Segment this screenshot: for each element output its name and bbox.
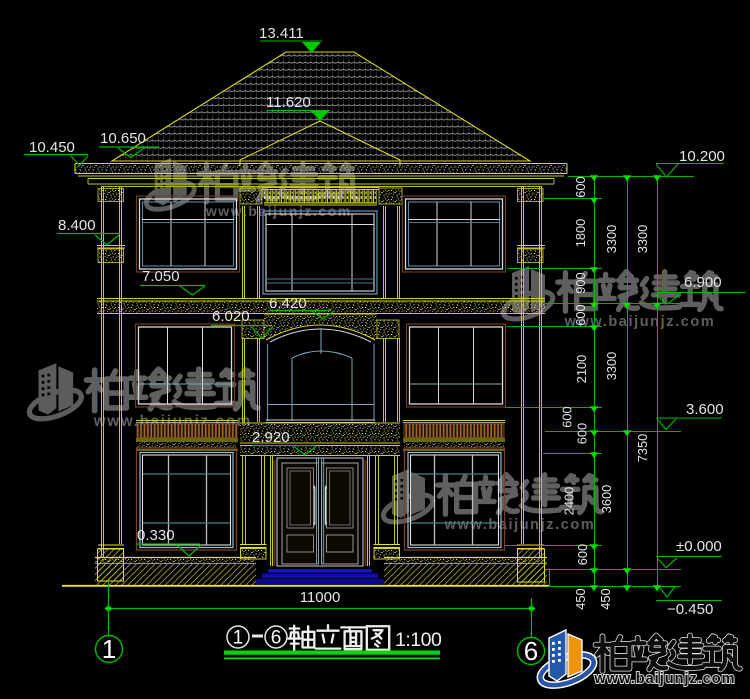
svg-text:6.020: 6.020 (212, 308, 250, 325)
svg-text:450: 450 (598, 588, 613, 609)
svg-text:1:100: 1:100 (395, 629, 442, 651)
svg-text:−0.450: −0.450 (667, 601, 713, 618)
svg-text:0.330: 0.330 (137, 527, 175, 544)
svg-text:1800: 1800 (573, 219, 588, 247)
svg-text:11000: 11000 (300, 589, 341, 606)
svg-text:450: 450 (573, 588, 588, 609)
svg-text:2400: 2400 (562, 487, 577, 515)
svg-text:600: 600 (573, 304, 588, 325)
svg-text:7.050: 7.050 (142, 268, 180, 285)
svg-text:6.900: 6.900 (684, 274, 722, 291)
svg-text:600: 600 (573, 176, 588, 197)
svg-text:600: 600 (560, 406, 575, 427)
svg-text:6.420: 6.420 (269, 295, 307, 312)
svg-text:600: 600 (575, 544, 590, 565)
svg-text:3.600: 3.600 (686, 401, 724, 418)
svg-text:6: 6 (524, 636, 538, 666)
svg-text:10.650: 10.650 (100, 130, 146, 147)
svg-text:13.411: 13.411 (259, 25, 304, 42)
svg-text:2100: 2100 (574, 355, 589, 383)
svg-text:3300: 3300 (604, 352, 619, 380)
svg-text:3300: 3300 (635, 225, 650, 253)
svg-text:6: 6 (271, 628, 282, 649)
svg-text:10.450: 10.450 (29, 139, 75, 156)
svg-text:8.400: 8.400 (58, 217, 96, 234)
svg-text:±0.000: ±0.000 (676, 538, 722, 555)
svg-text:2.920: 2.920 (252, 429, 290, 446)
svg-text:1: 1 (233, 628, 244, 649)
svg-text:3300: 3300 (604, 225, 619, 253)
svg-text:600: 600 (575, 423, 590, 444)
svg-text:10.200: 10.200 (679, 148, 725, 165)
svg-text:3600: 3600 (599, 485, 614, 513)
svg-text:7350: 7350 (635, 434, 650, 462)
svg-text:1: 1 (102, 634, 116, 664)
svg-text:900: 900 (573, 272, 588, 293)
svg-text:11.620: 11.620 (266, 94, 311, 111)
svg-text:www.baijunjz.com: www.baijunjz.com (593, 671, 735, 687)
